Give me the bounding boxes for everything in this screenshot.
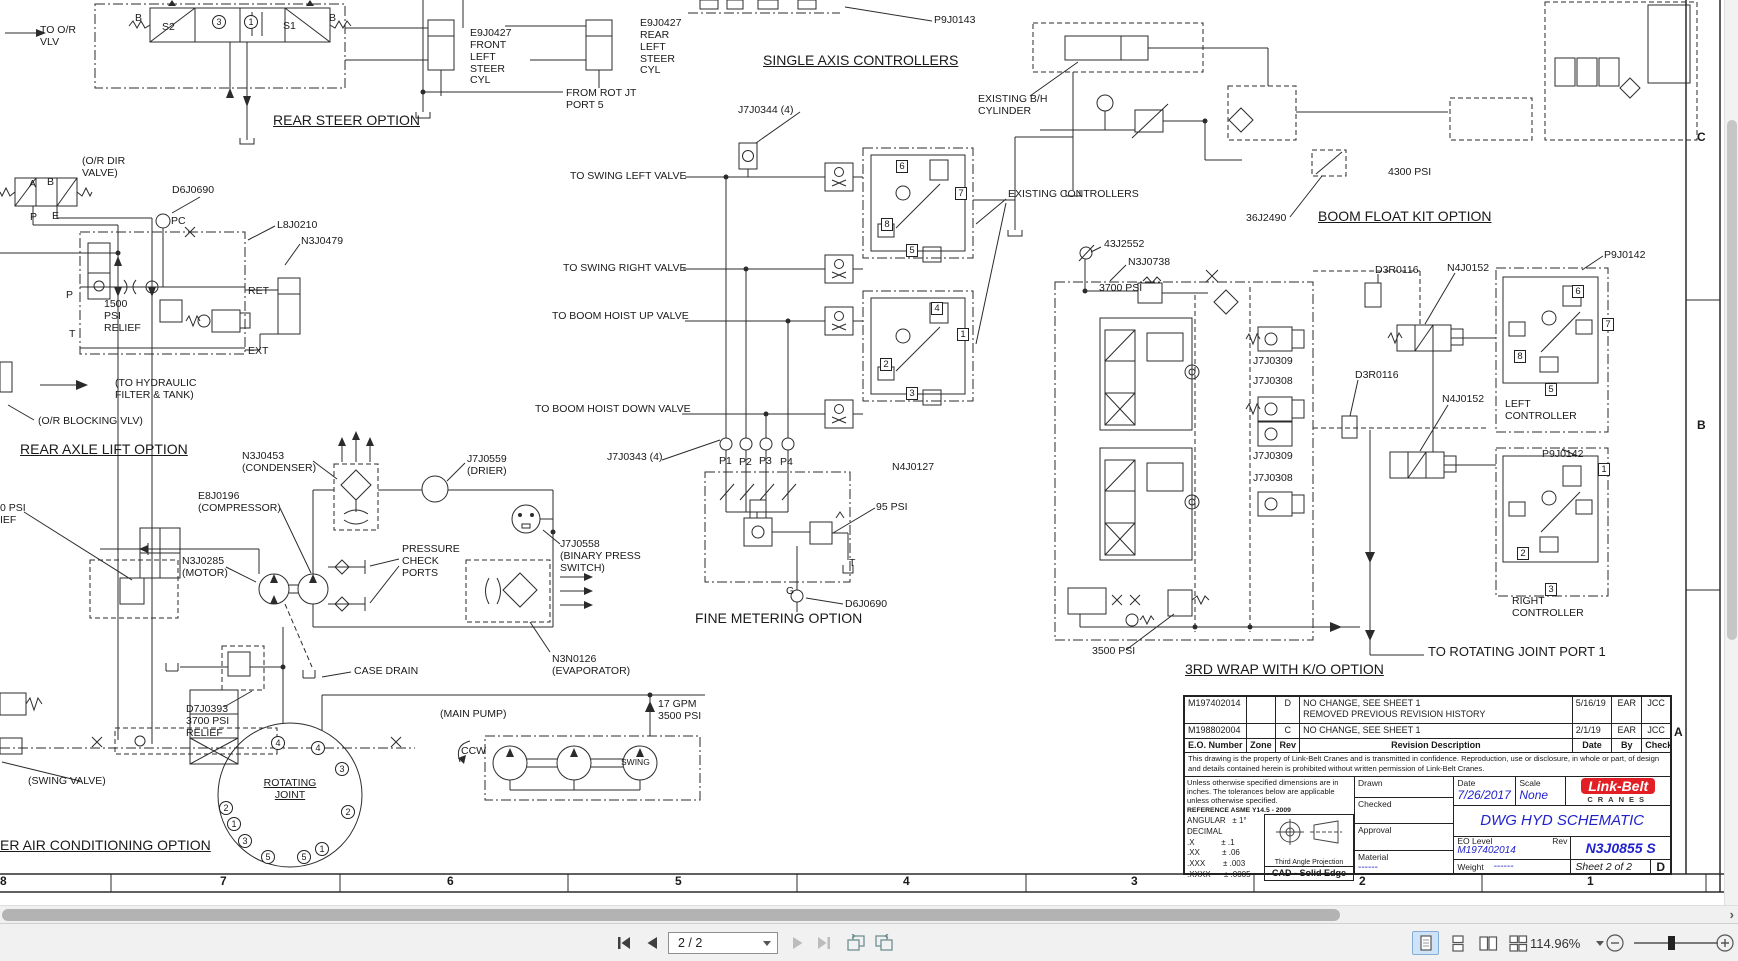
rotate-left-button[interactable] xyxy=(844,930,868,956)
rev-zone xyxy=(1247,697,1277,723)
schematic-label: P xyxy=(66,290,73,302)
schematic-label: P2 xyxy=(739,457,752,469)
linkbelt-logo: Link-Belt CRANES xyxy=(1566,777,1670,805)
title-block: M197402014 D NO CHANGE, SEE SHEET 1 REMO… xyxy=(1183,695,1672,875)
scale-value: None xyxy=(1519,788,1548,802)
drawn-label: Drawn xyxy=(1358,778,1450,788)
page-indicator: 2 / 2 xyxy=(669,936,763,950)
date-value: 7/26/2017 xyxy=(1457,788,1510,802)
title-air-conditioning-option: ER AIR CONDITIONING OPTION xyxy=(0,838,211,854)
schematic-label: S2 xyxy=(162,22,175,34)
schematic-label: (O/R BLOCKING VLV) xyxy=(38,416,143,428)
rev-header: Zone xyxy=(1247,739,1277,752)
schematic-label: 4 xyxy=(271,736,285,750)
schematic-label: E8J0196 (COMPRESSOR) xyxy=(198,491,281,515)
schematic-label: 1 xyxy=(957,328,969,341)
rev-description: NO CHANGE, SEE SHEET 1 REMOVED PREVIOUS … xyxy=(1300,697,1573,723)
schematic-label: 3 xyxy=(1545,583,1557,596)
tolerance-line: .XXX ± .003 xyxy=(1187,859,1265,870)
schematic-label: N3J0285 (MOTOR) xyxy=(182,556,228,580)
schematic-label: B xyxy=(329,13,336,25)
linkbelt-logo-cranes: CRANES xyxy=(1587,795,1649,804)
single-page-layout-button[interactable] xyxy=(1412,931,1439,955)
zoom-slider[interactable] xyxy=(1634,942,1718,944)
tolerance-line: ANGULAR ± 1° xyxy=(1187,816,1265,827)
schematic-label: P9J0143 xyxy=(934,15,975,27)
rev-description: NO CHANGE, SEE SHEET 1 xyxy=(1300,724,1573,738)
scroll-right-arrow-icon[interactable]: › xyxy=(1730,908,1734,922)
schematic-label: J7J0344 (4) xyxy=(738,105,793,117)
two-page-icon xyxy=(1478,935,1498,952)
schematic-label: (TO HYDRAULIC FILTER & TANK) xyxy=(115,378,196,402)
previous-page-button[interactable] xyxy=(640,930,664,956)
zoom-slider-handle[interactable] xyxy=(1668,936,1675,950)
sheet-size-letter: D xyxy=(1656,860,1665,874)
schematic-label: TO BOOM HOIST UP VALVE xyxy=(552,311,689,323)
schematic-label: E xyxy=(52,211,59,223)
two-page-layout-button[interactable] xyxy=(1474,931,1501,955)
schematic-label: J7J0309 xyxy=(1253,356,1293,368)
tolerance-line: .X ± .1 xyxy=(1187,838,1265,849)
sheet-number: Sheet 2 of 2 xyxy=(1575,861,1632,873)
schematic-label: 6 xyxy=(1572,285,1584,298)
schematic-label: SWING xyxy=(621,758,650,768)
schematic-label: D3R0116 xyxy=(1355,370,1399,382)
schematic-label: CASE DRAIN xyxy=(354,666,418,678)
schematic-label: 5 xyxy=(1545,383,1557,396)
schematic-label: 95 PSI xyxy=(876,502,908,514)
third-angle-projection-icon xyxy=(1274,819,1344,845)
schematic-label: P xyxy=(30,212,37,224)
tolerance-table: ANGULAR ± 1° DECIMAL .X ± .1 .XX ± .06 .… xyxy=(1185,814,1265,881)
schematic-label: P3 xyxy=(759,456,772,468)
zoom-out-button[interactable] xyxy=(1604,930,1626,956)
schematic-label: EXISTING CONTROLLERS xyxy=(1008,189,1139,201)
schematic-label: 1 xyxy=(227,817,241,831)
schematic-label: P1 xyxy=(719,456,732,468)
schematic-label: B xyxy=(47,177,54,189)
zone-number: 1 xyxy=(1587,875,1594,889)
schematic-label: T xyxy=(69,329,75,341)
schematic-label: 17 GPM 3500 PSI xyxy=(658,699,701,723)
revision-header-row: E.O. Number Zone Rev Revision Descriptio… xyxy=(1185,739,1670,753)
schematic-label: N4J0127 xyxy=(892,462,934,474)
revision-row: M197402014 D NO CHANGE, SEE SHEET 1 REMO… xyxy=(1185,697,1670,724)
schematic-label: T xyxy=(849,558,855,570)
tolerance-line: DECIMAL xyxy=(1187,827,1265,838)
schematic-label: 5 xyxy=(906,244,918,257)
title-fine-metering-option: FINE METERING OPTION xyxy=(695,611,862,627)
schematic-label: 36J2490 xyxy=(1246,213,1286,225)
rev-header: Check xyxy=(1642,739,1670,752)
schematic-label: TO O/R VLV xyxy=(40,25,76,49)
rev-by: EAR xyxy=(1612,724,1642,738)
zone-number: 5 xyxy=(675,875,682,889)
schematic-label: PRESSURE CHECK PORTS xyxy=(402,544,460,580)
revision-row: M198802004 C NO CHANGE, SEE SHEET 1 2/1/… xyxy=(1185,724,1670,739)
pdf-viewer-window: { "viewer": { "toolbar": { "page_indicat… xyxy=(0,0,1738,961)
zone-letter-a: A xyxy=(1674,726,1683,740)
drawing-number: N3J0855 S xyxy=(1586,840,1656,856)
reference-note: REFERENCE ASME Y14.5 - 2009 xyxy=(1185,807,1354,814)
schematic-label: 7 xyxy=(955,187,967,200)
rotate-right-icon xyxy=(874,934,894,952)
weight-value: ------ xyxy=(1494,861,1514,872)
weight-label: Weight xyxy=(1457,862,1483,872)
single-page-icon xyxy=(1417,935,1435,952)
projection-label: Third Angle Projection xyxy=(1275,859,1343,866)
schematic-label: FROM ROT JT PORT 5 xyxy=(566,88,636,112)
drawing-title: DWG HYD SCHEMATIC xyxy=(1480,812,1644,829)
rev-header: Rev xyxy=(1276,739,1300,752)
approval-label: Approval xyxy=(1358,825,1450,835)
rev-header: Revision Description xyxy=(1300,739,1573,752)
previous-page-icon xyxy=(645,936,659,950)
schematic-label: 7 xyxy=(1602,318,1614,331)
schematic-label: J7J0343 (4) xyxy=(607,452,662,464)
schematic-label: 3 xyxy=(238,834,252,848)
schematic-label: 3700 PSI xyxy=(1099,283,1142,295)
schematic-label: CCW xyxy=(461,746,486,758)
zone-number: 2 xyxy=(1359,875,1366,889)
title-single-axis-controllers: SINGLE AXIS CONTROLLERS xyxy=(763,53,958,69)
rev-zone xyxy=(1247,724,1277,738)
schematic-label: P4 xyxy=(780,457,793,469)
zone-number: 4 xyxy=(903,875,910,889)
schematic-label: L8J0210 xyxy=(277,220,317,232)
vertical-scrollbar[interactable] xyxy=(1724,0,1738,905)
scale-label: Scale xyxy=(1519,778,1562,788)
zone-number: 3 xyxy=(1131,875,1138,889)
schematic-label: 8 xyxy=(881,218,893,231)
schematic-label: N3N0126 (EVAPORATOR) xyxy=(552,654,630,678)
rev-letter: C xyxy=(1276,724,1300,738)
schematic-label: 3 xyxy=(335,762,349,776)
property-note: This drawing is the property of Link-Bel… xyxy=(1185,753,1670,777)
first-page-icon xyxy=(616,936,632,950)
schematic-label: PC xyxy=(171,216,186,228)
tolerance-line: .XX ± .06 xyxy=(1187,848,1265,859)
schematic-label: 5 xyxy=(297,850,311,864)
rev-eo-number: M197402014 xyxy=(1185,697,1247,723)
schematic-label: 2 xyxy=(880,358,892,371)
continuous-pages-icon xyxy=(1449,935,1467,952)
schematic-label: 3 xyxy=(212,15,226,29)
zone-number: 6 xyxy=(447,875,454,889)
tolerance-note: Unless otherwise specified dimensions ar… xyxy=(1185,777,1354,807)
zone-number: 8 xyxy=(0,875,7,889)
schematic-label: P9J0142 xyxy=(1604,250,1645,262)
schematic-label: 4300 PSI xyxy=(1388,167,1431,179)
zone-number: 7 xyxy=(220,875,227,889)
schematic-label: E9J0427 REAR LEFT STEER CYL xyxy=(640,18,681,77)
schematic-label: 8 xyxy=(1514,350,1526,363)
schematic-label: J7J0558 (BINARY PRESS SWITCH) xyxy=(560,539,641,575)
schematic-label: IEF xyxy=(0,515,16,527)
schematic-label: 2 xyxy=(341,805,355,819)
rev-header: E.O. Number xyxy=(1185,739,1247,752)
first-page-button[interactable] xyxy=(612,930,636,956)
schematic-label: J7J0309 xyxy=(1253,451,1293,463)
schematic-label: TO BOOM HOIST DOWN VALVE xyxy=(535,404,691,416)
last-page-icon xyxy=(816,936,832,950)
schematic-label: 1 xyxy=(244,15,258,29)
zoom-in-icon xyxy=(1716,934,1734,952)
next-page-icon xyxy=(791,936,805,950)
schematic-label: (SWING VALVE) xyxy=(28,776,106,788)
rev-letter: D xyxy=(1276,697,1300,723)
schematic-label: 3500 PSI xyxy=(1092,646,1135,658)
eo-level-value: M197402014 xyxy=(1457,845,1515,856)
schematic-label: N4J0152 xyxy=(1447,263,1489,275)
zoom-level-value[interactable]: 114.96% xyxy=(1530,936,1580,951)
page-dropdown-caret-icon[interactable] xyxy=(763,941,771,946)
schematic-label: 2 xyxy=(1517,547,1529,560)
schematic-label: J7J0559 (DRIER) xyxy=(467,454,507,478)
schematic-label: 2 xyxy=(219,801,233,815)
schematic-label: D7J0393 3700 PSI RELIEF xyxy=(186,704,229,740)
rev-by: EAR xyxy=(1612,697,1642,723)
schematic-label: TO SWING LEFT VALVE xyxy=(570,171,687,183)
rev-header: By xyxy=(1612,739,1642,752)
schematic-label: EXT xyxy=(248,346,268,358)
cad-label: CAD - Solid Edge xyxy=(1265,866,1353,879)
pdf-toolbar: 2 / 2 xyxy=(0,923,1738,961)
rev-check: JCC xyxy=(1642,724,1670,738)
horizontal-scrollbar[interactable]: › xyxy=(0,905,1738,923)
schematic-label: J7J0308 xyxy=(1253,473,1293,485)
schematic-label: J7J0308 xyxy=(1253,376,1293,388)
label-rotating-joint: ROTATING JOINT xyxy=(258,778,322,802)
schematic-label: S1 xyxy=(283,21,296,33)
rev-date: 5/16/19 xyxy=(1573,697,1613,723)
vertical-scrollbar-thumb[interactable] xyxy=(1727,120,1737,640)
zoom-dropdown-caret-icon[interactable] xyxy=(1596,941,1604,946)
schematic-label: 4 xyxy=(311,741,325,755)
schematic-label: LEFT CONTROLLER xyxy=(1505,399,1577,423)
schematic-label: D3R0116 xyxy=(1375,265,1419,277)
tolerance-line: .XXXX ± .0005 xyxy=(1187,870,1265,881)
schematic-label: (O/R DIR VALVE) xyxy=(82,156,125,180)
document-page: TO O/R VLVBS231S1BREAR STEER OPTIONE9J04… xyxy=(0,0,1724,905)
rotate-left-icon xyxy=(846,934,866,952)
schematic-label: 4 xyxy=(931,302,943,315)
checked-label: Checked xyxy=(1358,799,1450,809)
zoom-in-button[interactable] xyxy=(1714,930,1736,956)
title-3rd-wrap-option: 3RD WRAP WITH K/O OPTION xyxy=(1185,662,1384,678)
title-rear-steer-option: REAR STEER OPTION xyxy=(273,113,420,129)
schematic-label: EXISTING B/H CYLINDER xyxy=(978,94,1047,118)
next-page-button[interactable] xyxy=(786,930,810,956)
material-label: Material xyxy=(1358,852,1450,862)
zoom-out-icon xyxy=(1606,934,1624,952)
rev-header: Date xyxy=(1573,739,1613,752)
schematic-label: 43J2552 xyxy=(1104,239,1144,251)
schematic-label: (MAIN PUMP) xyxy=(440,709,507,721)
schematic-label: TO ROTATING JOINT PORT 1 xyxy=(1428,645,1606,660)
schematic-label: N3J0453 (CONDENSER) xyxy=(242,451,316,475)
schematic-label: D6J0690 xyxy=(172,185,214,197)
rev-label: Rev xyxy=(1552,837,1567,846)
schematic-label: E9J0427 FRONT LEFT STEER CYL xyxy=(470,28,511,87)
schematic-label: P9J0142 xyxy=(1542,449,1583,461)
schematic-label: 1500 PSI RELIEF xyxy=(104,299,141,335)
schematic-label: G xyxy=(786,586,794,598)
schematic-label: N4J0152 xyxy=(1442,394,1484,406)
schematic-label: B xyxy=(135,13,142,25)
schematic-label: TO SWING RIGHT VALVE xyxy=(563,263,687,275)
rotate-right-button[interactable] xyxy=(872,930,896,956)
two-page-continuous-icon xyxy=(1508,935,1528,952)
schematic-label: 1 xyxy=(315,842,329,856)
schematic-label: N3J0738 xyxy=(1128,257,1170,269)
two-page-continuous-layout-button[interactable] xyxy=(1504,931,1531,955)
schematic-label: 3 xyxy=(906,387,918,400)
zone-letter-b: B xyxy=(1697,419,1706,433)
title-boom-float-kit-option: BOOM FLOAT KIT OPTION xyxy=(1318,209,1491,225)
page-number-input[interactable]: 2 / 2 xyxy=(668,932,778,954)
rev-check: JCC xyxy=(1642,697,1670,723)
last-page-button[interactable] xyxy=(812,930,836,956)
schematic-label: 5 xyxy=(261,850,275,864)
schematic-label: 1 xyxy=(1598,463,1610,476)
schematic-label: RET xyxy=(248,286,269,298)
linkbelt-logo-brand: Link-Belt xyxy=(1581,778,1655,794)
horizontal-scrollbar-thumb[interactable] xyxy=(2,909,1340,921)
projection-cell: Third Angle Projection CAD - Solid Edge xyxy=(1264,814,1354,881)
schematic-label: RIGHT CONTROLLER xyxy=(1512,596,1584,620)
continuous-layout-button[interactable] xyxy=(1444,931,1471,955)
date-label: Date xyxy=(1457,778,1512,788)
schematic-label: 6 xyxy=(896,160,908,173)
zone-letter-c: C xyxy=(1697,131,1706,145)
rev-eo-number: M198802004 xyxy=(1185,724,1247,738)
title-rear-axle-lift-option: REAR AXLE LIFT OPTION xyxy=(20,442,188,458)
material-value: ------ xyxy=(1358,862,1378,873)
rev-date: 2/1/19 xyxy=(1573,724,1613,738)
schematic-label: A xyxy=(29,179,36,191)
schematic-label: N3J0479 xyxy=(301,236,343,248)
